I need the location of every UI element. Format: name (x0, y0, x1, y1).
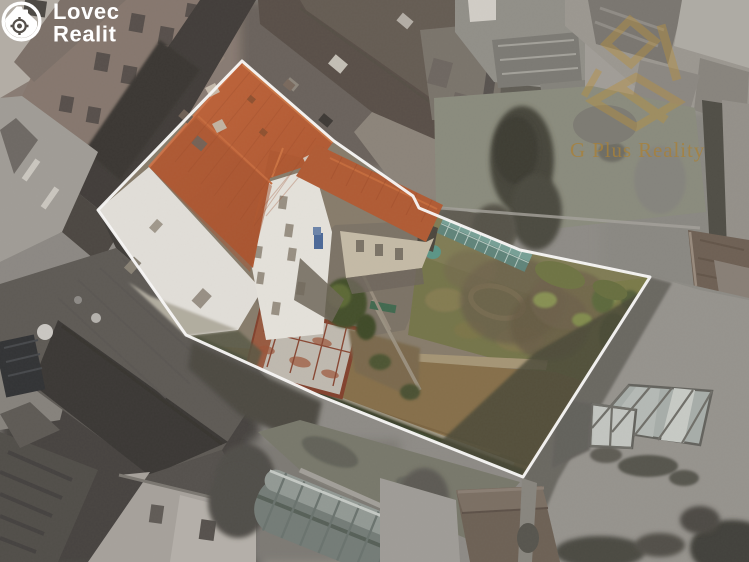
svg-text:Realit: Realit (53, 22, 117, 47)
svg-text:G Plus Reality: G Plus Reality (570, 138, 705, 162)
svg-text:Lovec: Lovec (53, 0, 120, 24)
